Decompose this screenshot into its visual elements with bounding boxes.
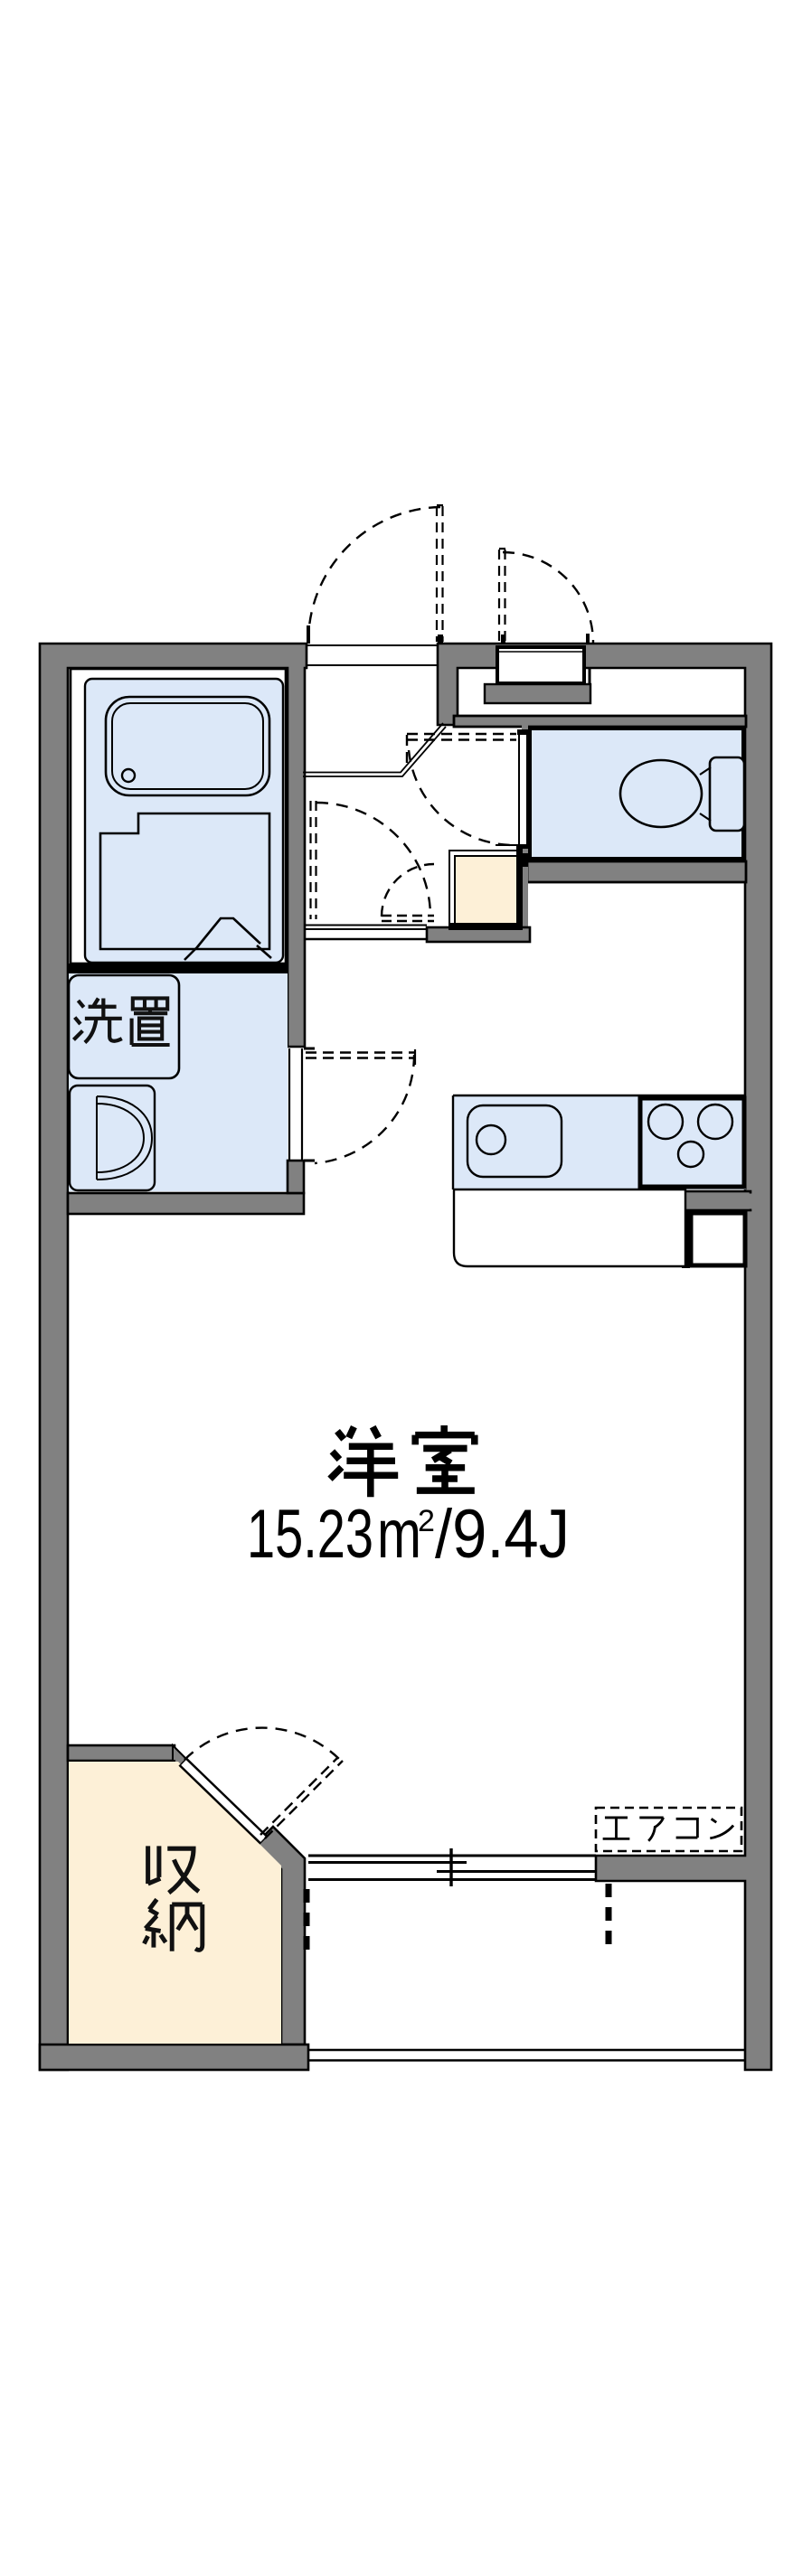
svg-text:m: m [377,1496,421,1573]
svg-text:15.23: 15.23 [247,1496,373,1573]
svg-text:2: 2 [418,1504,435,1538]
svg-text:/9.4J: /9.4J [435,1496,570,1573]
